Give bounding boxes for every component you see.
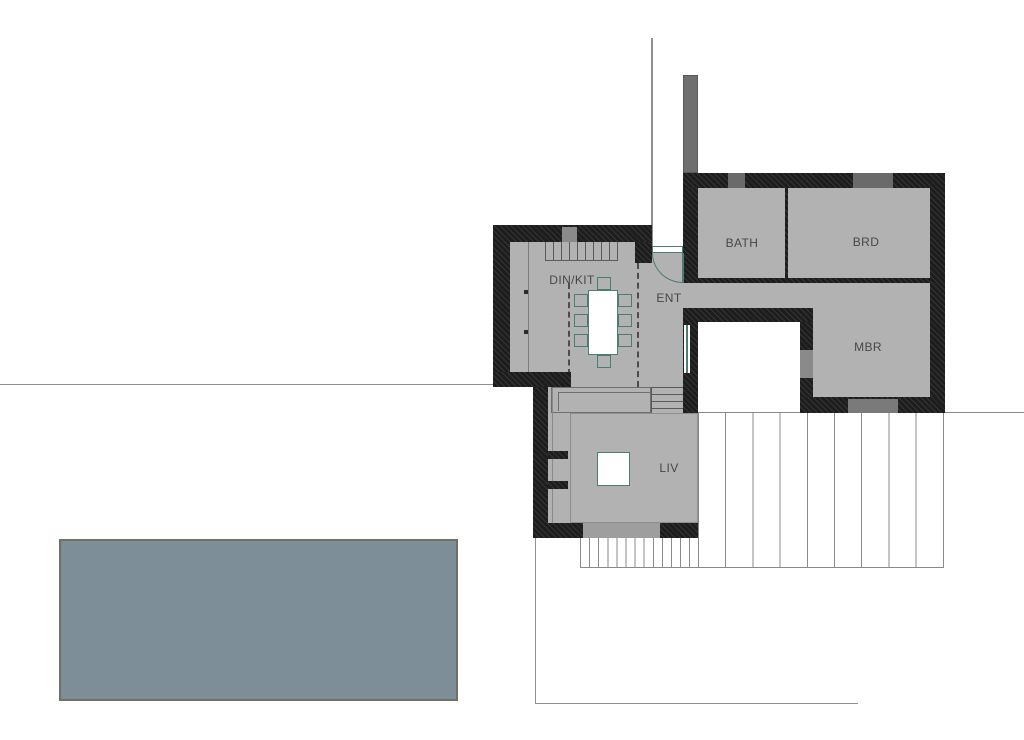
kitchen-fixture-dot-1 xyxy=(524,290,528,294)
dining-chair-bottom xyxy=(597,355,611,368)
garden-wall-stub xyxy=(683,75,698,173)
window-mbr-west xyxy=(800,350,813,378)
wall-bath-brd-divider xyxy=(785,188,788,278)
swimming-pool xyxy=(59,539,458,701)
room-label-brd: BRD xyxy=(853,235,880,249)
room-label-mbr: MBR xyxy=(854,340,882,354)
floor-dinkit xyxy=(510,242,652,375)
wall-bedrooms-south xyxy=(698,278,930,283)
window-mbr-south xyxy=(848,399,898,413)
dashed-divider-right xyxy=(637,263,639,387)
steps-to-liv xyxy=(651,387,683,413)
liv-table xyxy=(597,452,630,486)
bench-cabinet xyxy=(551,387,651,413)
wall-liv-west xyxy=(533,387,548,538)
wall-west-left xyxy=(493,242,510,372)
courtyard-glazing-line xyxy=(686,325,688,373)
wall-west-south xyxy=(493,372,571,387)
stairs-treads xyxy=(545,240,618,261)
entry-door-leaf xyxy=(652,246,683,253)
wall-liv-stub-2 xyxy=(548,481,568,489)
floor-plan-canvas: BATH BRD MBR DIN/KIT ENT LIV xyxy=(0,0,1024,740)
wall-entry-jamb xyxy=(635,242,652,263)
window-bath-north xyxy=(728,173,745,188)
room-label-dinkit: DIN/KIT xyxy=(549,273,594,287)
dining-chair-top xyxy=(597,277,611,290)
boundary-line-north xyxy=(651,38,653,248)
dining-chair-right-2 xyxy=(618,314,632,327)
window-liv-south xyxy=(583,523,660,538)
room-label-bath: BATH xyxy=(726,236,759,250)
bench-cabinet-inner-line xyxy=(558,392,650,411)
dining-chair-right-3 xyxy=(618,334,632,347)
deck-edge-bottom-line xyxy=(580,567,944,568)
window-brd-north xyxy=(853,173,893,188)
wall-corridor-south xyxy=(683,308,813,322)
window-dinkit-north xyxy=(562,227,577,242)
entry-door-jamb-line xyxy=(682,253,684,283)
deck-boards-south xyxy=(580,538,698,568)
dining-chair-left-1 xyxy=(574,294,588,307)
wall-ne-right xyxy=(930,188,945,412)
kitchen-fixture-dot-2 xyxy=(524,330,528,334)
dining-chair-left-2 xyxy=(574,314,588,327)
room-label-ent: ENT xyxy=(656,291,681,305)
boundary-line-west xyxy=(0,384,493,385)
wall-ne-top xyxy=(683,173,945,188)
floor-corridor xyxy=(683,283,813,308)
kitchen-counter-line xyxy=(528,242,529,375)
dashed-divider-left xyxy=(568,283,570,375)
floor-bath xyxy=(698,188,785,278)
boundary-line-south-horizontal xyxy=(535,703,858,704)
liv-floor-slab xyxy=(570,413,698,523)
dining-chair-left-3 xyxy=(574,334,588,347)
wall-ne-left xyxy=(683,188,698,283)
room-label-liv: LIV xyxy=(659,461,678,475)
dining-chair-right-1 xyxy=(618,294,632,307)
wall-liv-stub-1 xyxy=(548,451,568,459)
boundary-line-south-vertical xyxy=(535,538,536,703)
dining-table xyxy=(588,290,618,355)
deck-boards-east xyxy=(698,413,944,568)
floor-brd xyxy=(788,188,930,278)
